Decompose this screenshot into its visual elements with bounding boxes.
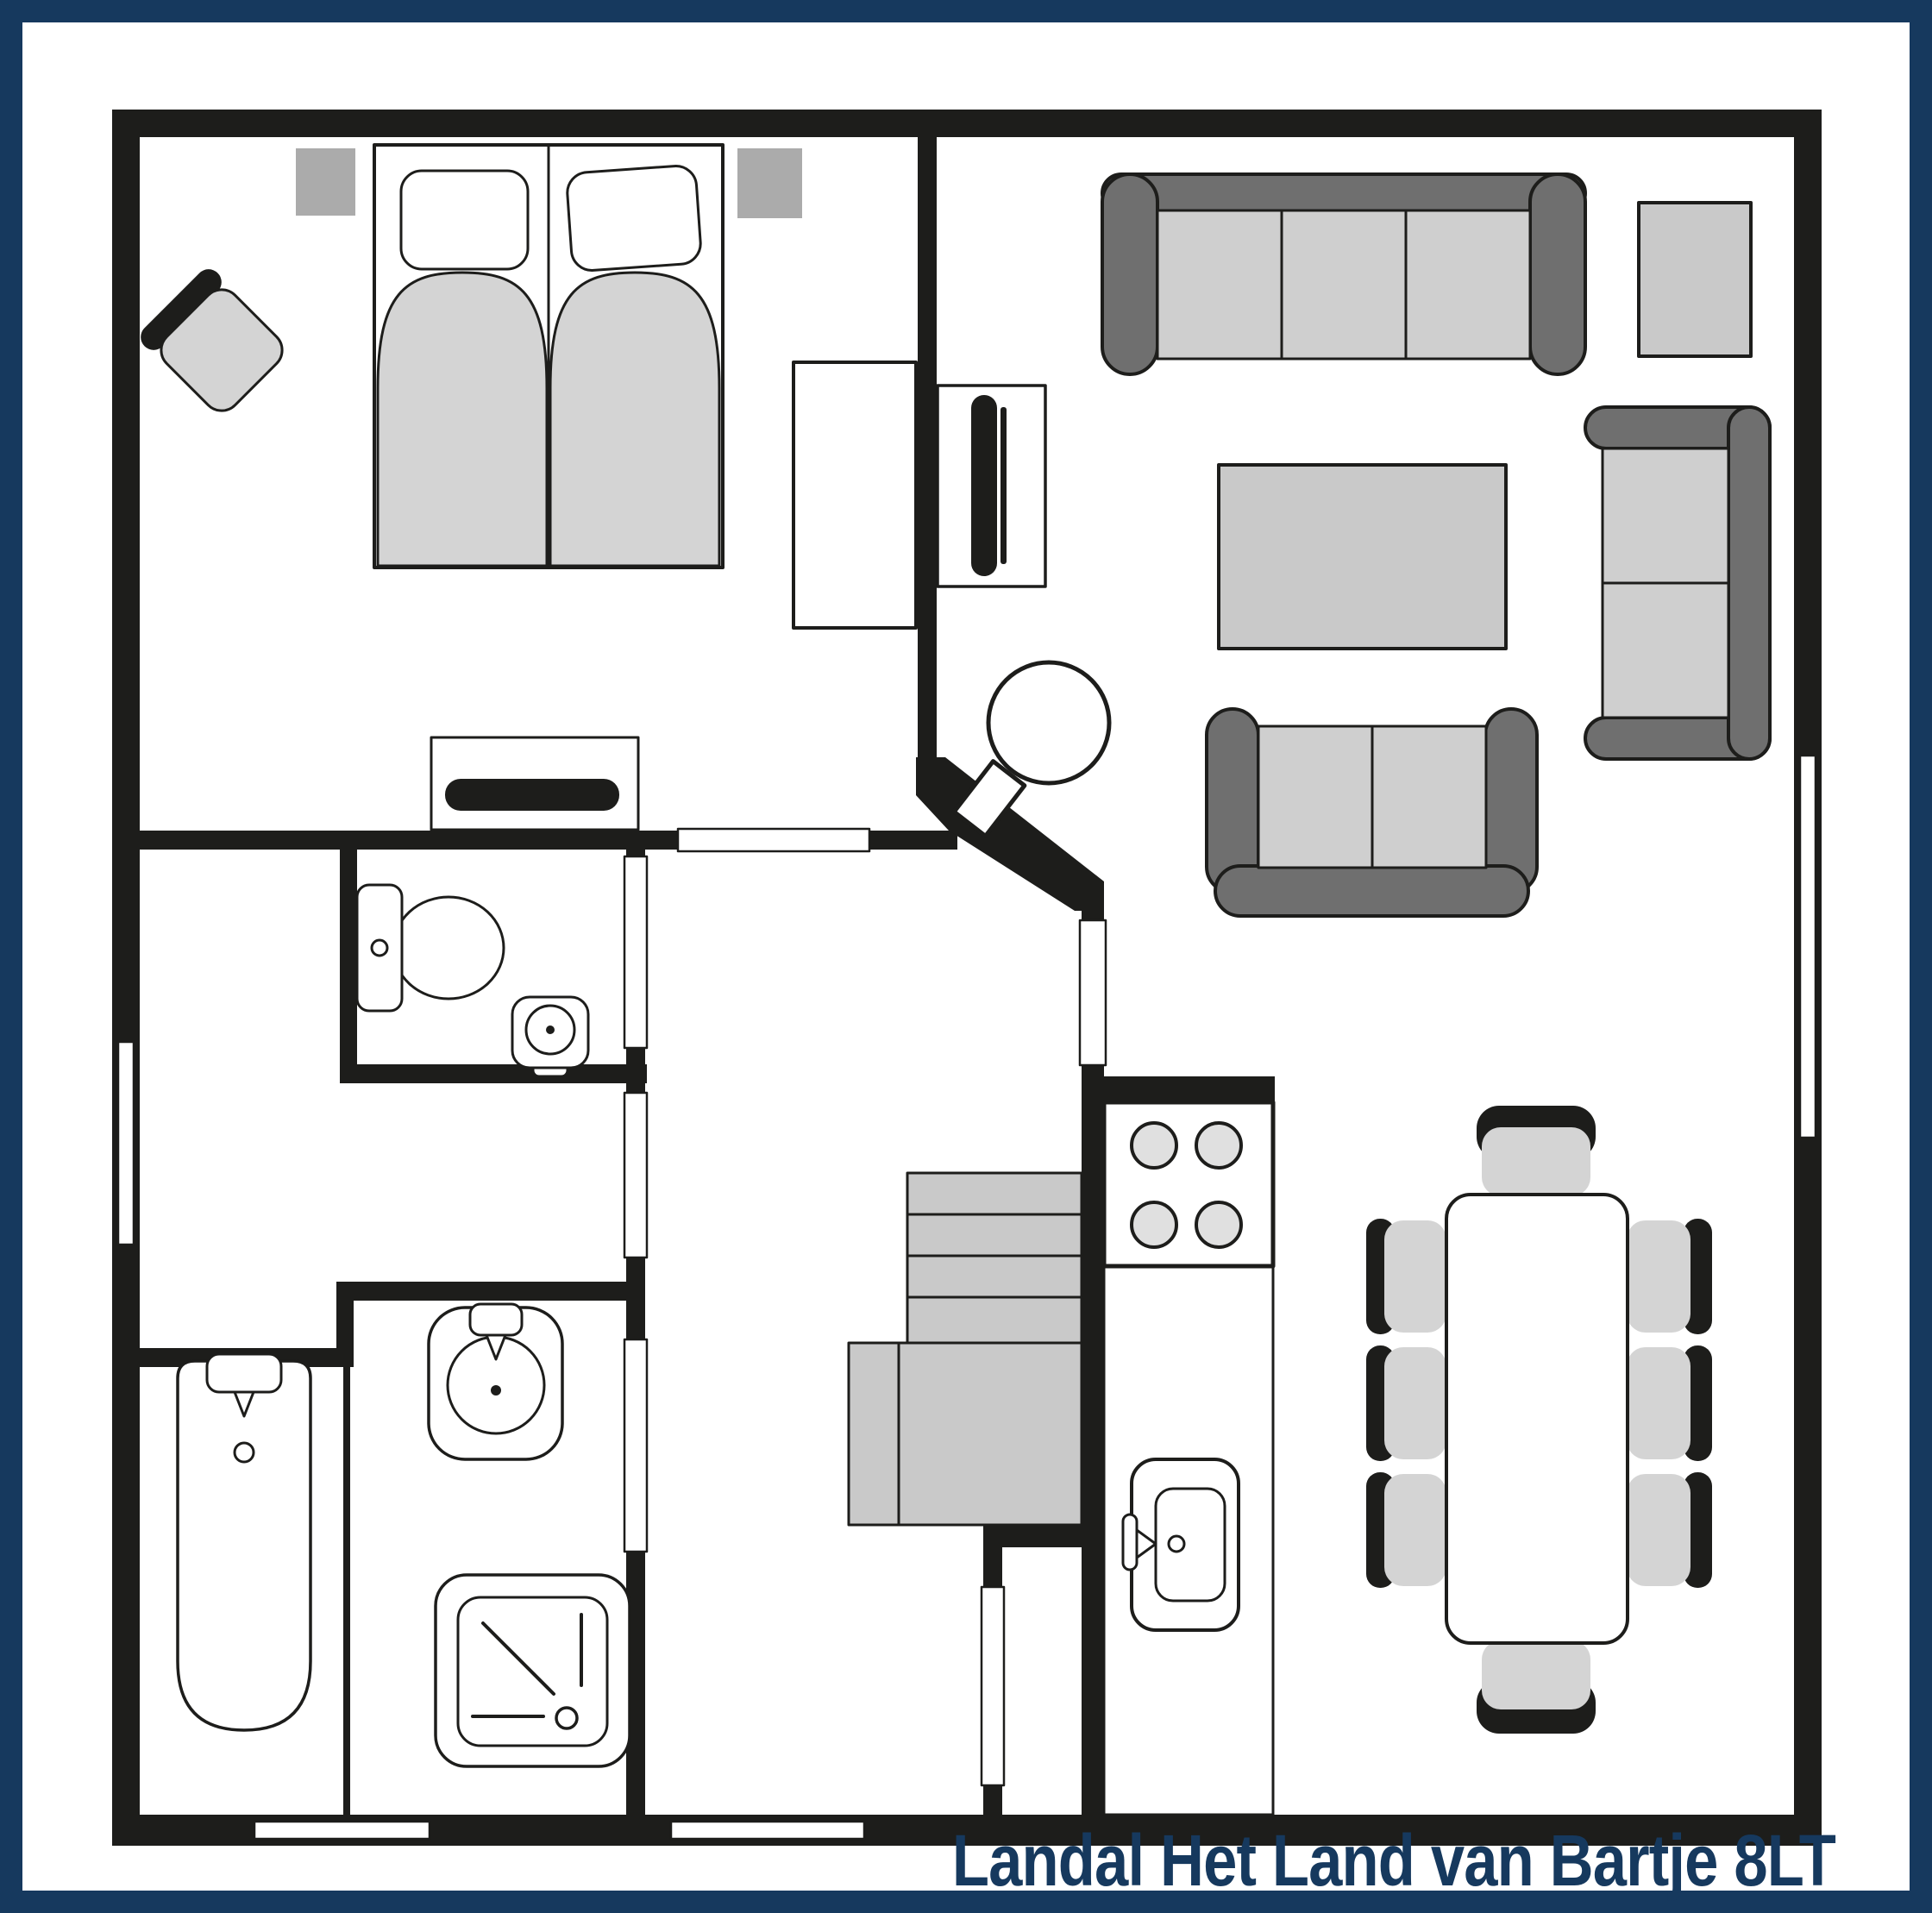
- caption-label: Landal Het Land van Bartje 8LT: [952, 1821, 1836, 1901]
- wall-toilet-left: [340, 850, 357, 1083]
- shower-drain: [556, 1708, 577, 1728]
- frame-border-left: [0, 0, 22, 1913]
- toilet-flush-button: [372, 940, 387, 956]
- nightstand-right: [737, 148, 802, 218]
- nightstand-left: [296, 148, 355, 216]
- door-bathroom: [624, 1339, 647, 1552]
- shape-layer: [0, 0, 1932, 1913]
- pillow-left: [401, 171, 528, 269]
- stair-step-2: [907, 1214, 1082, 1256]
- dining-chair-seat: [1384, 1220, 1446, 1333]
- toilet-bowl: [393, 897, 504, 999]
- door-bedroom: [678, 829, 869, 851]
- loveseat-back: [1215, 866, 1528, 916]
- dining-chair-seat: [1627, 1474, 1690, 1586]
- pillow-right: [566, 165, 702, 272]
- wall-bedroom-right: [918, 137, 937, 781]
- duvet-right: [550, 273, 719, 566]
- sofa-cushion: [1282, 210, 1406, 359]
- loveseat-cushion: [1372, 726, 1486, 868]
- kitchen-faucet: [1123, 1515, 1137, 1570]
- dining-chair-seat: [1627, 1347, 1690, 1459]
- dining-table: [1446, 1195, 1628, 1643]
- sofa-back: [1102, 174, 1585, 212]
- wall-kitchen-stub: [1082, 1076, 1275, 1102]
- bathtub-drain: [235, 1443, 254, 1462]
- side-table: [1639, 203, 1751, 356]
- wall-outer-top: [112, 110, 1822, 137]
- stove-burner-4: [1196, 1202, 1241, 1247]
- stove-burner-2: [1196, 1123, 1241, 1168]
- dining-chair-seat: [1482, 1127, 1590, 1196]
- dining-chair-seat: [1627, 1220, 1690, 1333]
- wall-bath-partition-thin: [343, 1367, 350, 1815]
- front-door: [671, 1822, 864, 1839]
- armchair-back: [1728, 407, 1770, 759]
- door-hall: [624, 1093, 647, 1258]
- stove: [1104, 1102, 1273, 1266]
- frame-border-top: [0, 0, 1932, 22]
- tv: [971, 395, 997, 576]
- window-left: [118, 1042, 134, 1245]
- kitchen-sink-drain: [1169, 1536, 1184, 1552]
- wall-bathroom-top: [340, 1282, 645, 1301]
- washbasin-drain: [491, 1385, 501, 1396]
- bathtub-faucet-deck: [207, 1354, 281, 1392]
- floor-plan: Landal Het Land van Bartje 8LT: [0, 0, 1932, 1913]
- dining-chair-seat: [1482, 1640, 1590, 1709]
- wall-outer-left: [112, 110, 140, 1846]
- stair-step-1: [907, 1173, 1082, 1214]
- sofa-arm-right: [1530, 174, 1585, 374]
- toilet-sink-drain: [546, 1025, 555, 1034]
- stove-burner-3: [1132, 1202, 1176, 1247]
- dining-chair-seat: [1384, 1474, 1446, 1586]
- sofa-cushion: [1157, 210, 1282, 359]
- wall-bath-divider-thick: [336, 1282, 354, 1367]
- dining-chair-seat: [1384, 1347, 1446, 1459]
- stair-step-3: [907, 1256, 1082, 1297]
- stair-landing: [849, 1343, 1082, 1525]
- dresser-handle: [445, 779, 619, 811]
- loveseat-cushion: [1258, 726, 1372, 868]
- armchair-cushion: [1603, 583, 1728, 718]
- stove-burner-1: [1132, 1123, 1176, 1168]
- sofa-arm-left: [1102, 174, 1157, 374]
- stair-step-4: [907, 1297, 1082, 1343]
- door-living: [1080, 920, 1106, 1065]
- frame-border-right: [1910, 0, 1932, 1913]
- wall-toilet-bottom: [340, 1064, 647, 1083]
- washbasin-faucet: [470, 1304, 522, 1335]
- armchair-cushion: [1603, 448, 1728, 583]
- sofa-cushion: [1406, 210, 1530, 359]
- tv-screen-line: [1000, 407, 1007, 564]
- wood-stove: [988, 662, 1109, 783]
- window-right: [1800, 756, 1816, 1138]
- door-closet: [982, 1587, 1004, 1785]
- window-bottom: [254, 1822, 430, 1839]
- coffee-table: [1219, 465, 1506, 649]
- wardrobe: [793, 362, 916, 628]
- door-toilet: [624, 856, 647, 1048]
- duvet-left: [378, 273, 547, 566]
- floor-plan-svg: Landal Het Land van Bartje 8LT: [0, 0, 1932, 1913]
- kitchen-sink-basin: [1156, 1489, 1225, 1601]
